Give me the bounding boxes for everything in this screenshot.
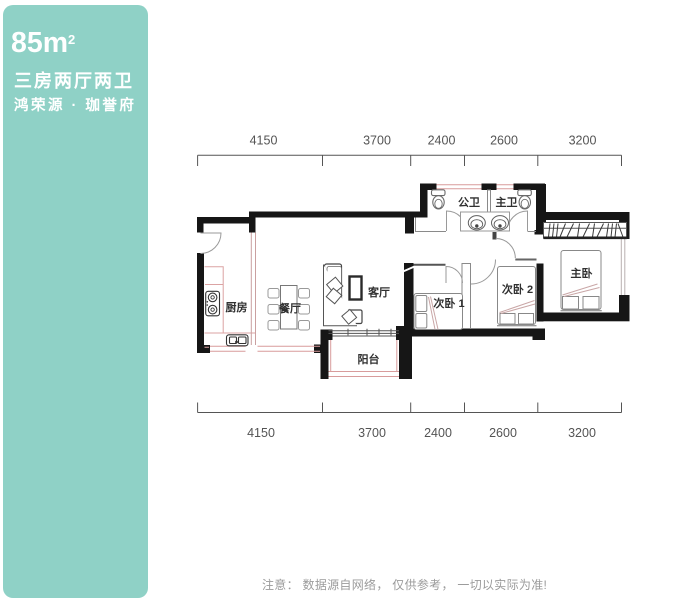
svg-text:2600: 2600 — [490, 134, 518, 148]
svg-text:厨房: 厨房 — [226, 300, 248, 314]
svg-text:公卫: 公卫 — [458, 196, 480, 209]
svg-text:注意： 数据源自网络， 仅供参考， 一切以实际为准!: 注意： 数据源自网络， 仅供参考， 一切以实际为准! — [262, 577, 547, 592]
svg-text:主卧: 主卧 — [571, 266, 593, 280]
svg-text:客厅: 客厅 — [367, 285, 390, 299]
svg-text:次卧 2: 次卧 2 — [502, 282, 533, 296]
svg-text:2600: 2600 — [489, 426, 517, 440]
svg-text:3200: 3200 — [569, 134, 597, 148]
svg-text:4150: 4150 — [247, 426, 275, 440]
svg-text:3700: 3700 — [358, 426, 386, 440]
svg-text:次卧 1: 次卧 1 — [433, 296, 464, 310]
svg-text:2400: 2400 — [428, 134, 456, 148]
svg-text:餐厅: 餐厅 — [278, 301, 301, 315]
svg-text:3200: 3200 — [568, 426, 596, 440]
svg-text:2400: 2400 — [424, 426, 452, 440]
svg-text:3700: 3700 — [363, 134, 391, 148]
svg-text:阳台: 阳台 — [358, 352, 380, 366]
svg-text:4150: 4150 — [250, 134, 278, 148]
svg-text:主卫: 主卫 — [496, 195, 518, 209]
